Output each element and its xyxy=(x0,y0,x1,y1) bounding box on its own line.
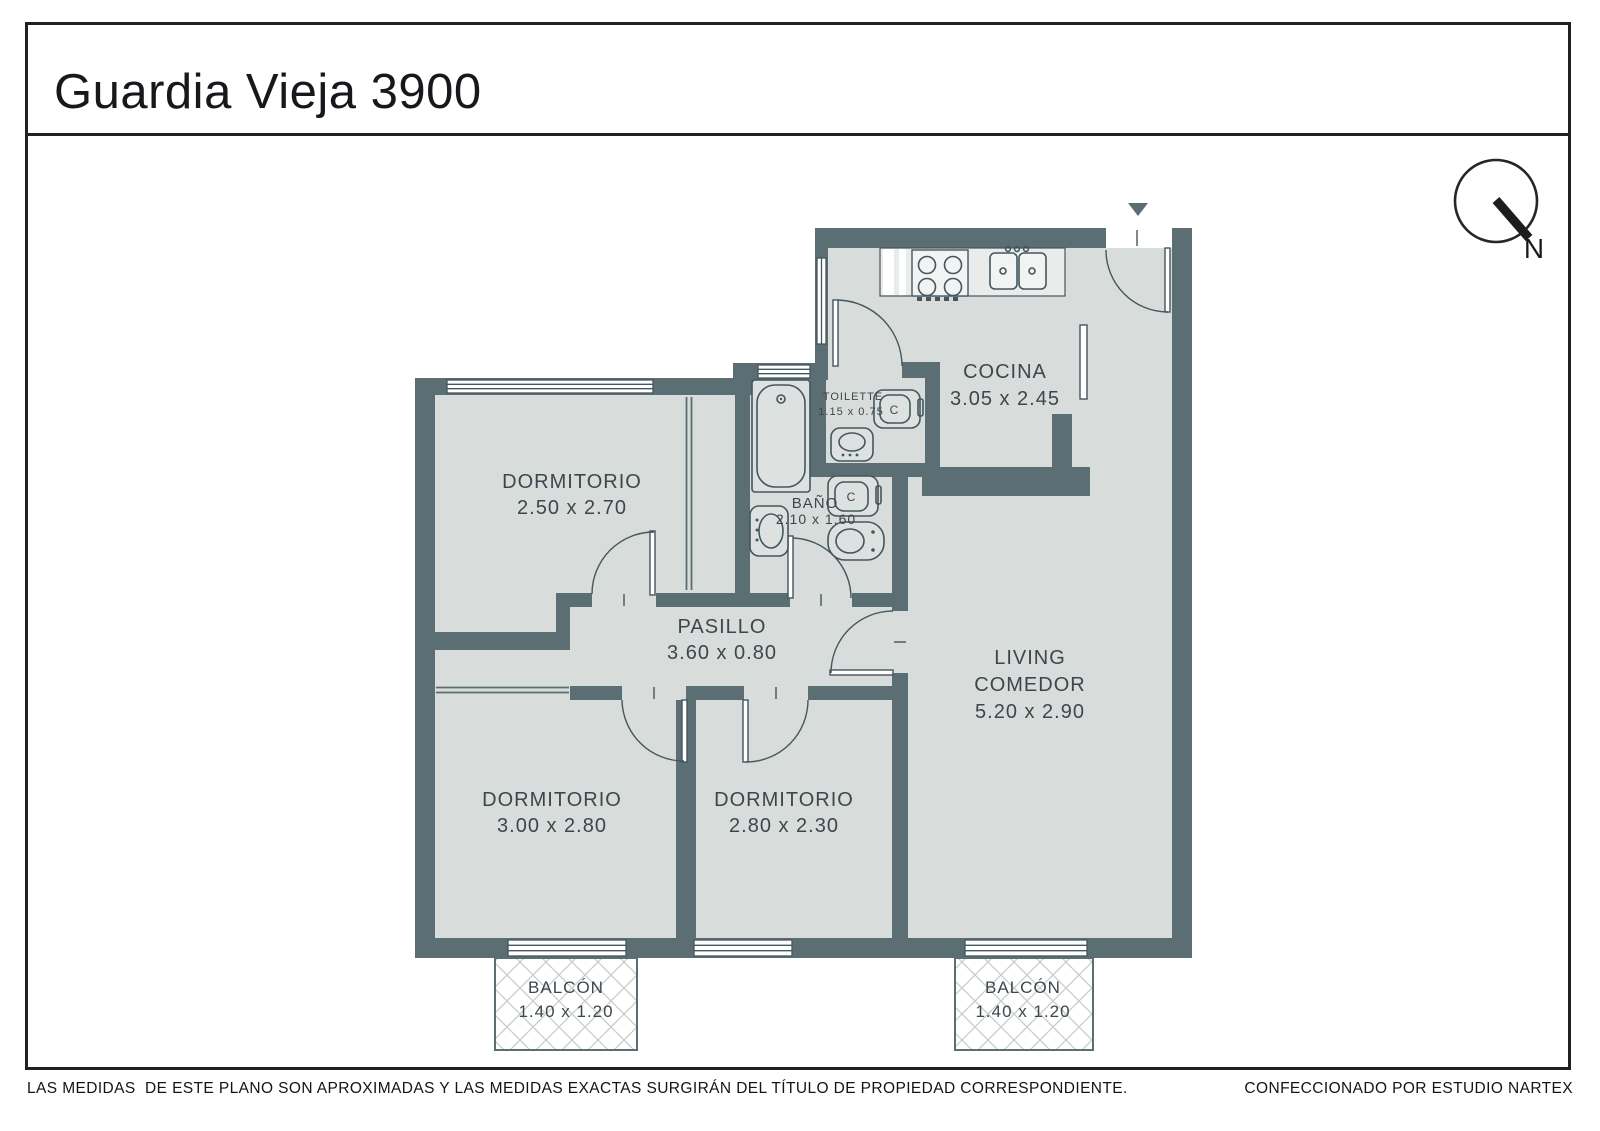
floor-plan-page: BALCÓN 1.40 x 1.20 BALCÓN 1.40 x 1.20 xyxy=(0,0,1600,1131)
title-separator-line xyxy=(25,133,1571,136)
page-title: Guardia Vieja 3900 xyxy=(54,64,482,120)
footer-disclaimer: LAS MEDIDAS DE ESTE PLANO SON APROXIMADA… xyxy=(27,1080,1128,1098)
page-border xyxy=(25,22,1571,1070)
footer: LAS MEDIDAS DE ESTE PLANO SON APROXIMADA… xyxy=(27,1080,1573,1098)
footer-credit: CONFECCIONADO POR ESTUDIO NARTEX xyxy=(1244,1080,1573,1098)
